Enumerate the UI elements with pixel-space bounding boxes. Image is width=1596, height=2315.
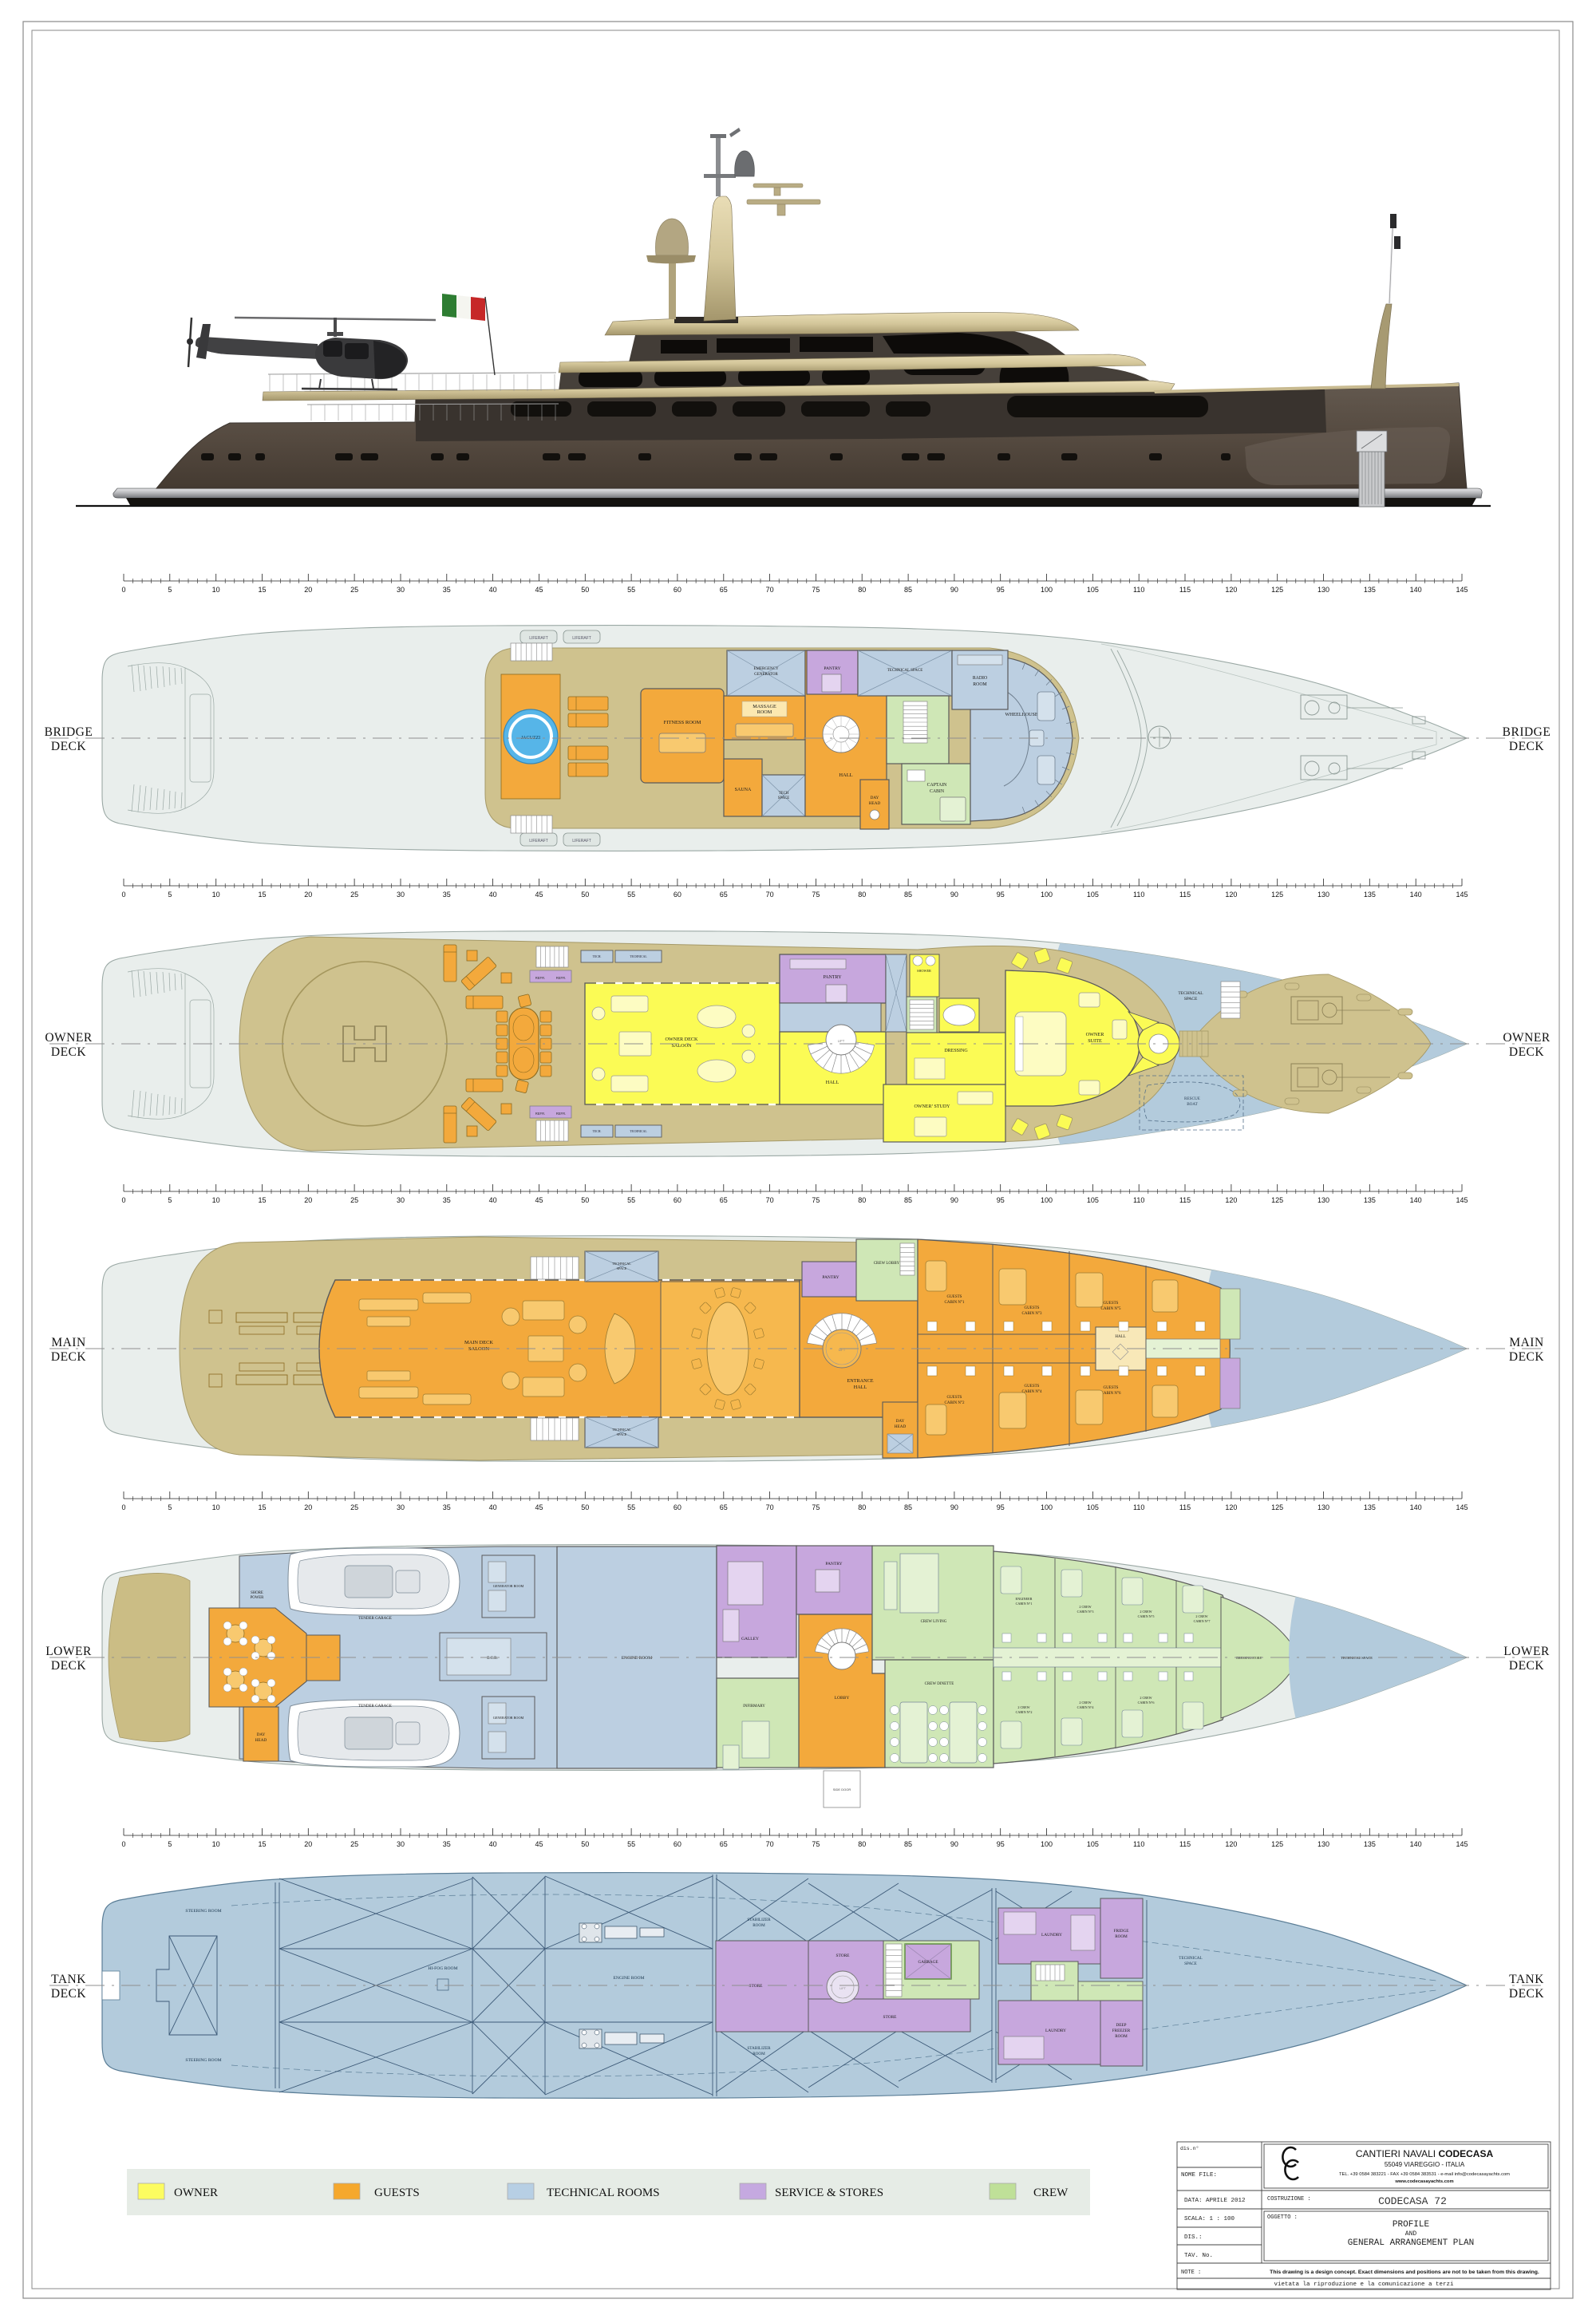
- svg-text:INFIRMARY: INFIRMARY: [743, 1705, 765, 1709]
- svg-text:25: 25: [350, 1196, 358, 1204]
- svg-text:45: 45: [535, 891, 543, 899]
- svg-text:75: 75: [812, 891, 820, 899]
- svg-text:35: 35: [443, 1196, 451, 1204]
- svg-text:CABIN N°3: CABIN N°3: [1077, 1610, 1094, 1614]
- svg-text:100: 100: [1041, 586, 1053, 594]
- svg-text:CODECASA 72: CODECASA 72: [1378, 2195, 1447, 2207]
- svg-text:ENGINEER: ENGINEER: [1016, 1597, 1033, 1601]
- svg-text:CABIN N°6: CABIN N°6: [1138, 1701, 1155, 1705]
- svg-text:SPACE: SPACE: [617, 1266, 627, 1270]
- svg-text:95: 95: [997, 1503, 1005, 1511]
- svg-text:30: 30: [397, 586, 405, 594]
- svg-text:45: 45: [535, 1840, 543, 1848]
- svg-text:140: 140: [1410, 1503, 1422, 1511]
- svg-text:TANK: TANK: [1509, 1973, 1544, 1986]
- svg-text:HEAD: HEAD: [255, 1738, 267, 1743]
- svg-text:25: 25: [350, 1840, 358, 1848]
- svg-text:65: 65: [720, 586, 728, 594]
- svg-text:GUESTS: GUESTS: [1104, 1302, 1119, 1306]
- svg-text:85: 85: [904, 1840, 912, 1848]
- svg-text:STORE: STORE: [883, 2015, 898, 2020]
- svg-text:TECHNICAL: TECHNICAL: [612, 1428, 631, 1432]
- svg-text:20: 20: [304, 1840, 312, 1848]
- svg-text:HEAD: HEAD: [895, 1424, 907, 1429]
- svg-text:DIS.:: DIS.:: [1184, 2234, 1203, 2241]
- svg-text:105: 105: [1087, 1503, 1099, 1511]
- svg-text:LAUNDRY: LAUNDRY: [1041, 1933, 1062, 1938]
- svg-text:AND: AND: [1405, 2230, 1417, 2238]
- svg-text:OWNER DECK: OWNER DECK: [665, 1037, 698, 1042]
- svg-text:LIFERAFT: LIFERAFT: [529, 839, 548, 843]
- svg-text:55: 55: [627, 1196, 635, 1204]
- svg-text:TEL. +39 0584 383221 - FAX +39: TEL. +39 0584 383221 - FAX +39 0584 3835…: [1339, 2172, 1510, 2177]
- svg-text:5: 5: [168, 1840, 172, 1848]
- svg-text:ENTRANCE: ENTRANCE: [847, 1378, 874, 1384]
- svg-text:GUESTS: GUESTS: [1025, 1306, 1040, 1310]
- svg-text:DECK: DECK: [1509, 1659, 1545, 1673]
- svg-text:110: 110: [1133, 1840, 1144, 1848]
- svg-text:40: 40: [489, 1840, 497, 1848]
- svg-text:CABIN N°1: CABIN N°1: [1016, 1602, 1033, 1606]
- svg-text:TECHNICAL: TECHNICAL: [630, 1130, 647, 1133]
- svg-text:EMERGENCY: EMERGENCY: [753, 667, 779, 671]
- svg-text:CABIN N°6: CABIN N°6: [1101, 1392, 1121, 1396]
- svg-text:POWER: POWER: [251, 1596, 265, 1600]
- svg-text:135: 135: [1364, 586, 1376, 594]
- svg-text:125: 125: [1271, 891, 1283, 899]
- svg-text:130: 130: [1317, 586, 1329, 594]
- svg-text:STABILIZER: STABILIZER: [747, 1918, 771, 1922]
- svg-text:50: 50: [581, 1840, 589, 1848]
- svg-text:35: 35: [443, 891, 451, 899]
- svg-text:75: 75: [812, 1196, 820, 1204]
- svg-text:130: 130: [1317, 1840, 1329, 1848]
- svg-text:HALL: HALL: [839, 772, 852, 778]
- svg-text:SERVICE & STORES: SERVICE & STORES: [775, 2187, 883, 2199]
- svg-text:OWNER: OWNER: [1503, 1031, 1550, 1045]
- svg-text:HALL: HALL: [826, 1080, 839, 1085]
- svg-text:ROOM: ROOM: [1115, 2034, 1128, 2039]
- svg-text:0: 0: [121, 1196, 125, 1204]
- svg-text:60: 60: [674, 1196, 681, 1204]
- svg-text:115: 115: [1179, 891, 1191, 899]
- svg-text:50: 50: [581, 1503, 589, 1511]
- svg-text:35: 35: [443, 1840, 451, 1848]
- svg-text:5: 5: [168, 891, 172, 899]
- svg-text:LAUNDRY: LAUNDRY: [1045, 2029, 1066, 2033]
- svg-text:70: 70: [766, 1196, 774, 1204]
- svg-text:LIFT: LIFT: [838, 1039, 845, 1043]
- svg-text:2 CREW: 2 CREW: [1079, 1701, 1091, 1705]
- svg-text:30: 30: [397, 891, 405, 899]
- svg-text:70: 70: [766, 891, 774, 899]
- svg-text:TECHNICAL: TECHNICAL: [1178, 991, 1203, 996]
- svg-text:SAUNA: SAUNA: [735, 788, 752, 792]
- svg-text:STEERING ROOM: STEERING ROOM: [185, 2058, 221, 2063]
- svg-text:80: 80: [858, 1196, 866, 1204]
- svg-text:GUESTS: GUESTS: [947, 1396, 962, 1400]
- svg-text:130: 130: [1317, 1196, 1329, 1204]
- svg-text:20: 20: [304, 586, 312, 594]
- svg-text:45: 45: [535, 586, 543, 594]
- svg-text:115: 115: [1179, 1840, 1191, 1848]
- svg-text:PANTRY: PANTRY: [824, 666, 840, 671]
- svg-text:FREEZER: FREEZER: [1112, 2029, 1131, 2033]
- svg-text:NOME FILE:: NOME FILE:: [1181, 2172, 1217, 2179]
- svg-text:CREW LIVING: CREW LIVING: [921, 1620, 947, 1624]
- svg-text:MAIN DECK: MAIN DECK: [464, 1340, 493, 1345]
- svg-text:ROOM: ROOM: [973, 682, 986, 687]
- svg-text:2 CREW: 2 CREW: [1140, 1610, 1152, 1614]
- svg-text:145: 145: [1456, 586, 1468, 594]
- svg-text:OWNER: OWNER: [174, 2187, 218, 2199]
- svg-text:70: 70: [766, 1503, 774, 1511]
- svg-text:TECHNICAL: TECHNICAL: [630, 955, 647, 958]
- svg-text:HI-FOG ROOM: HI-FOG ROOM: [428, 1966, 457, 1971]
- svg-text:95: 95: [997, 891, 1005, 899]
- svg-text:55: 55: [627, 1840, 635, 1848]
- svg-text:60: 60: [674, 1840, 681, 1848]
- svg-text:30: 30: [397, 1503, 405, 1511]
- svg-text:DECK: DECK: [51, 1045, 87, 1059]
- svg-text:115: 115: [1179, 586, 1191, 594]
- svg-text:60: 60: [674, 586, 681, 594]
- svg-text:140: 140: [1410, 1840, 1422, 1848]
- svg-text:20: 20: [304, 1196, 312, 1204]
- svg-text:DEEP: DEEP: [1116, 2023, 1127, 2028]
- svg-text:LIFERAFT: LIFERAFT: [529, 636, 548, 641]
- svg-text:75: 75: [812, 1503, 820, 1511]
- svg-text:LIFT: LIFT: [839, 1987, 846, 1990]
- svg-text:ROOM: ROOM: [753, 1923, 765, 1928]
- svg-text:120: 120: [1225, 1196, 1237, 1204]
- svg-text:80: 80: [858, 1840, 866, 1848]
- svg-text:25: 25: [350, 586, 358, 594]
- svg-text:RESCUE: RESCUE: [1184, 1096, 1200, 1101]
- svg-text:dis.n°: dis.n°: [1180, 2145, 1199, 2151]
- svg-text:130: 130: [1317, 1503, 1329, 1511]
- svg-text:PROFILE: PROFILE: [1393, 2220, 1430, 2230]
- svg-text:80: 80: [858, 1503, 866, 1511]
- svg-text:115: 115: [1179, 1196, 1191, 1204]
- svg-text:DATA: APRILE 2012: DATA: APRILE 2012: [1184, 2198, 1246, 2204]
- svg-text:NOTE :: NOTE :: [1181, 2270, 1201, 2276]
- svg-text:10: 10: [212, 891, 220, 899]
- svg-text:110: 110: [1133, 1503, 1144, 1511]
- svg-text:FRIDGE: FRIDGE: [1114, 1929, 1129, 1934]
- svg-text:SPACE: SPACE: [1184, 997, 1198, 1001]
- svg-text:GARBAGE: GARBAGE: [918, 1960, 938, 1965]
- svg-text:115: 115: [1179, 1503, 1191, 1511]
- svg-text:TECH: TECH: [779, 792, 789, 796]
- svg-text:0: 0: [121, 1840, 125, 1848]
- svg-text:100: 100: [1041, 1503, 1053, 1511]
- svg-text:40: 40: [489, 1503, 497, 1511]
- svg-text:90: 90: [950, 891, 958, 899]
- svg-text:STORE: STORE: [836, 1954, 851, 1958]
- svg-text:105: 105: [1087, 586, 1099, 594]
- svg-text:SPACE: SPACE: [617, 1432, 627, 1436]
- svg-text:CREW DINETTE: CREW DINETTE: [925, 1682, 954, 1686]
- svg-text:DAY: DAY: [871, 796, 879, 800]
- svg-text:GENERATOR ROOM: GENERATOR ROOM: [493, 1716, 524, 1720]
- svg-text:LOBBY: LOBBY: [835, 1696, 850, 1701]
- svg-text:20: 20: [304, 1503, 312, 1511]
- svg-text:BOAT: BOAT: [1187, 1102, 1198, 1107]
- svg-text:85: 85: [904, 1196, 912, 1204]
- svg-text:GUESTS: GUESTS: [947, 1295, 962, 1299]
- svg-text:135: 135: [1364, 1503, 1376, 1511]
- svg-text:135: 135: [1364, 891, 1376, 899]
- svg-text:CABIN N°3: CABIN N°3: [1022, 1312, 1042, 1316]
- svg-text:DAY: DAY: [257, 1732, 266, 1737]
- svg-text:80: 80: [858, 586, 866, 594]
- svg-text:2 CREW: 2 CREW: [1195, 1614, 1207, 1618]
- svg-text:65: 65: [720, 1196, 728, 1204]
- svg-text:140: 140: [1410, 891, 1422, 899]
- svg-text:CANTIERI NAVALI CODECASA: CANTIERI NAVALI CODECASA: [1356, 2148, 1494, 2159]
- svg-text:145: 145: [1456, 891, 1468, 899]
- svg-text:vietata la riproduzione e: vietata la riproduzione e la comunicazio…: [1274, 2281, 1454, 2288]
- svg-text:140: 140: [1410, 586, 1422, 594]
- svg-text:15: 15: [258, 586, 266, 594]
- svg-text:TECHNICAL: TECHNICAL: [612, 1262, 631, 1266]
- svg-text:STORE: STORE: [749, 1984, 764, 1989]
- svg-text:RADIO: RADIO: [973, 676, 987, 681]
- svg-text:LIFERAFT: LIFERAFT: [572, 636, 591, 641]
- svg-text:110: 110: [1133, 586, 1144, 594]
- svg-text:90: 90: [950, 1196, 958, 1204]
- svg-text:COSTRUZIONE :: COSTRUZIONE :: [1267, 2196, 1311, 2202]
- svg-text:5: 5: [168, 1503, 172, 1511]
- svg-text:60: 60: [674, 1503, 681, 1511]
- svg-text:PANTRY: PANTRY: [825, 1562, 842, 1566]
- svg-text:ROOM: ROOM: [753, 2052, 765, 2056]
- svg-text:SPACE: SPACE: [778, 796, 790, 800]
- svg-text:25: 25: [350, 1503, 358, 1511]
- svg-text:75: 75: [812, 586, 820, 594]
- svg-text:90: 90: [950, 586, 958, 594]
- svg-text:HEAD: HEAD: [869, 801, 881, 806]
- svg-text:DECK: DECK: [51, 1350, 87, 1364]
- svg-text:30: 30: [397, 1196, 405, 1204]
- svg-text:110: 110: [1133, 891, 1144, 899]
- svg-text:OWNER’ STUDY: OWNER’ STUDY: [914, 1104, 950, 1109]
- svg-text:LOWER: LOWER: [1503, 1645, 1550, 1658]
- svg-text:CABIN N°7: CABIN N°7: [1194, 1619, 1211, 1623]
- svg-text:HALL: HALL: [1115, 1335, 1125, 1339]
- svg-text:65: 65: [720, 891, 728, 899]
- svg-text:TECH.: TECH.: [593, 955, 602, 958]
- svg-text:70: 70: [766, 586, 774, 594]
- svg-text:95: 95: [997, 586, 1005, 594]
- svg-text:GENERAL ARRANGEMENT PLAN: GENERAL ARRANGEMENT PLAN: [1348, 2238, 1474, 2248]
- svg-text:85: 85: [904, 1503, 912, 1511]
- svg-text:65: 65: [720, 1503, 728, 1511]
- svg-text:120: 120: [1225, 1503, 1237, 1511]
- svg-text:OGGETTO :: OGGETTO :: [1267, 2214, 1298, 2221]
- svg-text:15: 15: [258, 1840, 266, 1848]
- svg-text:PANTRY: PANTRY: [822, 1275, 839, 1280]
- svg-text:DECK: DECK: [1509, 1045, 1545, 1059]
- svg-text:TANK: TANK: [51, 1973, 86, 1986]
- svg-text:OWNER: OWNER: [1086, 1032, 1105, 1037]
- svg-text:DECK: DECK: [1509, 1987, 1545, 2001]
- svg-text:GALLEY: GALLEY: [741, 1637, 759, 1641]
- svg-text:CREW LOBBY: CREW LOBBY: [874, 1262, 900, 1266]
- svg-text:0: 0: [121, 891, 125, 899]
- svg-text:50: 50: [581, 891, 589, 899]
- svg-text:2 CREW: 2 CREW: [1140, 1696, 1152, 1700]
- svg-text:SHOWER: SHOWER: [917, 969, 931, 973]
- svg-text:LIFERAFT: LIFERAFT: [572, 839, 591, 843]
- svg-text:SUITE: SUITE: [1088, 1038, 1102, 1044]
- svg-text:OWNER: OWNER: [45, 1031, 92, 1045]
- svg-text:CABIN N°2: CABIN N°2: [1016, 1710, 1033, 1714]
- svg-text:REFR.: REFR.: [556, 976, 567, 980]
- svg-text:0: 0: [121, 586, 125, 594]
- svg-text:CABIN: CABIN: [930, 789, 945, 794]
- svg-text:TECH.: TECH.: [593, 1130, 602, 1133]
- svg-text:TECHNICAL SPACE: TECHNICAL SPACE: [887, 669, 923, 673]
- svg-text:100: 100: [1041, 1840, 1053, 1848]
- svg-text:75: 75: [812, 1840, 820, 1848]
- svg-text:135: 135: [1364, 1196, 1376, 1204]
- svg-text:2 CREW: 2 CREW: [1079, 1605, 1091, 1609]
- svg-text:100: 100: [1041, 891, 1053, 899]
- svg-text:STEERING ROOM: STEERING ROOM: [185, 1909, 221, 1914]
- svg-text:60: 60: [674, 891, 681, 899]
- svg-text:TAV. No.: TAV. No.: [1184, 2253, 1213, 2259]
- svg-text:HALL: HALL: [854, 1385, 867, 1390]
- svg-text:CABIN N°5: CABIN N°5: [1101, 1307, 1121, 1311]
- svg-text:GENERATOR: GENERATOR: [754, 673, 778, 677]
- svg-text:5: 5: [168, 1196, 172, 1204]
- svg-text:120: 120: [1225, 891, 1237, 899]
- svg-text:0: 0: [121, 1503, 125, 1511]
- svg-text:20: 20: [304, 891, 312, 899]
- svg-text:DECK: DECK: [51, 740, 87, 753]
- svg-text:35: 35: [443, 586, 451, 594]
- svg-text:55049 VIAREGGIO - ITALIA: 55049 VIAREGGIO - ITALIA: [1385, 2161, 1465, 2168]
- svg-text:DECK: DECK: [51, 1987, 87, 2001]
- svg-text:SHORE: SHORE: [251, 1591, 263, 1595]
- svg-text:45: 45: [535, 1503, 543, 1511]
- svg-text:TENDER GARAGE: TENDER GARAGE: [358, 1617, 392, 1621]
- svg-text:50: 50: [581, 1196, 589, 1204]
- svg-text:10: 10: [212, 1840, 220, 1848]
- svg-text:30: 30: [397, 1840, 405, 1848]
- svg-text:PANTRY: PANTRY: [823, 975, 842, 980]
- svg-text:CABIN N°2: CABIN N°2: [945, 1401, 965, 1405]
- svg-text:110: 110: [1133, 1196, 1144, 1204]
- svg-text:105: 105: [1087, 891, 1099, 899]
- svg-text:www.codecasayachts.com: www.codecasayachts.com: [1394, 2179, 1453, 2184]
- svg-text:BRIDGE: BRIDGE: [45, 725, 93, 739]
- svg-text:DAY: DAY: [896, 1419, 905, 1424]
- svg-text:MAIN: MAIN: [1509, 1336, 1543, 1349]
- svg-text:85: 85: [904, 586, 912, 594]
- svg-text:130: 130: [1317, 891, 1329, 899]
- svg-text:90: 90: [950, 1503, 958, 1511]
- svg-text:DECK: DECK: [1509, 740, 1545, 753]
- svg-text:135: 135: [1364, 1840, 1376, 1848]
- svg-text:BRIDGE: BRIDGE: [1503, 725, 1551, 739]
- svg-text:ENGINE ROOM: ENGINE ROOM: [622, 1656, 652, 1661]
- svg-text:15: 15: [258, 1196, 266, 1204]
- svg-text:100: 100: [1041, 1196, 1053, 1204]
- svg-text:REFR.: REFR.: [556, 1112, 567, 1116]
- svg-text:35: 35: [443, 1503, 451, 1511]
- svg-text:65: 65: [720, 1840, 728, 1848]
- svg-text:MAIN: MAIN: [51, 1336, 85, 1349]
- svg-text:55: 55: [627, 891, 635, 899]
- svg-text:ROOM: ROOM: [757, 709, 772, 715]
- svg-text:15: 15: [258, 891, 266, 899]
- svg-text:55: 55: [627, 586, 635, 594]
- svg-text:FITNESS ROOM: FITNESS ROOM: [664, 720, 701, 725]
- svg-text:10: 10: [212, 1196, 220, 1204]
- svg-text:CAPTAIN: CAPTAIN: [927, 783, 947, 788]
- svg-text:REFR.: REFR.: [535, 1112, 546, 1116]
- svg-text:SPACE: SPACE: [1184, 1961, 1197, 1966]
- svg-text:DECK: DECK: [51, 1659, 87, 1673]
- svg-text:105: 105: [1087, 1196, 1099, 1204]
- svg-text:125: 125: [1271, 1840, 1283, 1848]
- svg-text:ENGINE ROOM: ENGINE ROOM: [614, 1976, 645, 1981]
- svg-text:70: 70: [766, 1840, 774, 1848]
- svg-text:145: 145: [1456, 1196, 1468, 1204]
- svg-text:GUESTS: GUESTS: [374, 2187, 420, 2199]
- svg-text:140: 140: [1410, 1196, 1422, 1204]
- svg-text:125: 125: [1271, 586, 1283, 594]
- svg-text:SCALA: 1 : 100: SCALA: 1 : 100: [1184, 2216, 1235, 2222]
- svg-text:120: 120: [1225, 1840, 1237, 1848]
- svg-text:40: 40: [489, 891, 497, 899]
- svg-text:125: 125: [1271, 1503, 1283, 1511]
- svg-text:55: 55: [627, 1503, 635, 1511]
- svg-text:145: 145: [1456, 1503, 1468, 1511]
- svg-text:SIDE DOOR: SIDE DOOR: [833, 1788, 851, 1792]
- svg-text:95: 95: [997, 1196, 1005, 1204]
- svg-text:MASSAGE: MASSAGE: [753, 704, 776, 709]
- svg-text:WHEELHOUSE: WHEELHOUSE: [1005, 713, 1038, 717]
- svg-text:DRESSING: DRESSING: [944, 1049, 968, 1053]
- svg-text:95: 95: [997, 1840, 1005, 1848]
- svg-text:105: 105: [1087, 1840, 1099, 1848]
- svg-text:CABIN N°5: CABIN N°5: [1138, 1614, 1155, 1618]
- svg-text:50: 50: [581, 586, 589, 594]
- svg-text:TECHNICAL: TECHNICAL: [1179, 1956, 1202, 1961]
- svg-text:REFR.: REFR.: [535, 976, 546, 980]
- svg-text:145: 145: [1456, 1840, 1468, 1848]
- svg-text:40: 40: [489, 1196, 497, 1204]
- svg-text:80: 80: [858, 891, 866, 899]
- svg-text:TENDER GARAGE: TENDER GARAGE: [358, 1705, 392, 1709]
- svg-text:LOWER: LOWER: [45, 1645, 92, 1658]
- svg-text:45: 45: [535, 1196, 543, 1204]
- svg-text:125: 125: [1271, 1196, 1283, 1204]
- svg-text:GUESTS: GUESTS: [1104, 1386, 1119, 1390]
- svg-text:10: 10: [212, 586, 220, 594]
- svg-text:90: 90: [950, 1840, 958, 1848]
- svg-text:GENERATOR ROOM: GENERATOR ROOM: [493, 1584, 524, 1588]
- svg-text:CABIN N°4: CABIN N°4: [1077, 1705, 1095, 1709]
- svg-text:This drawing is a design conce: This drawing is a design concept. Exact …: [1270, 2270, 1539, 2275]
- svg-text:85: 85: [904, 891, 912, 899]
- svg-text:DECK: DECK: [1509, 1350, 1545, 1364]
- svg-text:120: 120: [1225, 586, 1237, 594]
